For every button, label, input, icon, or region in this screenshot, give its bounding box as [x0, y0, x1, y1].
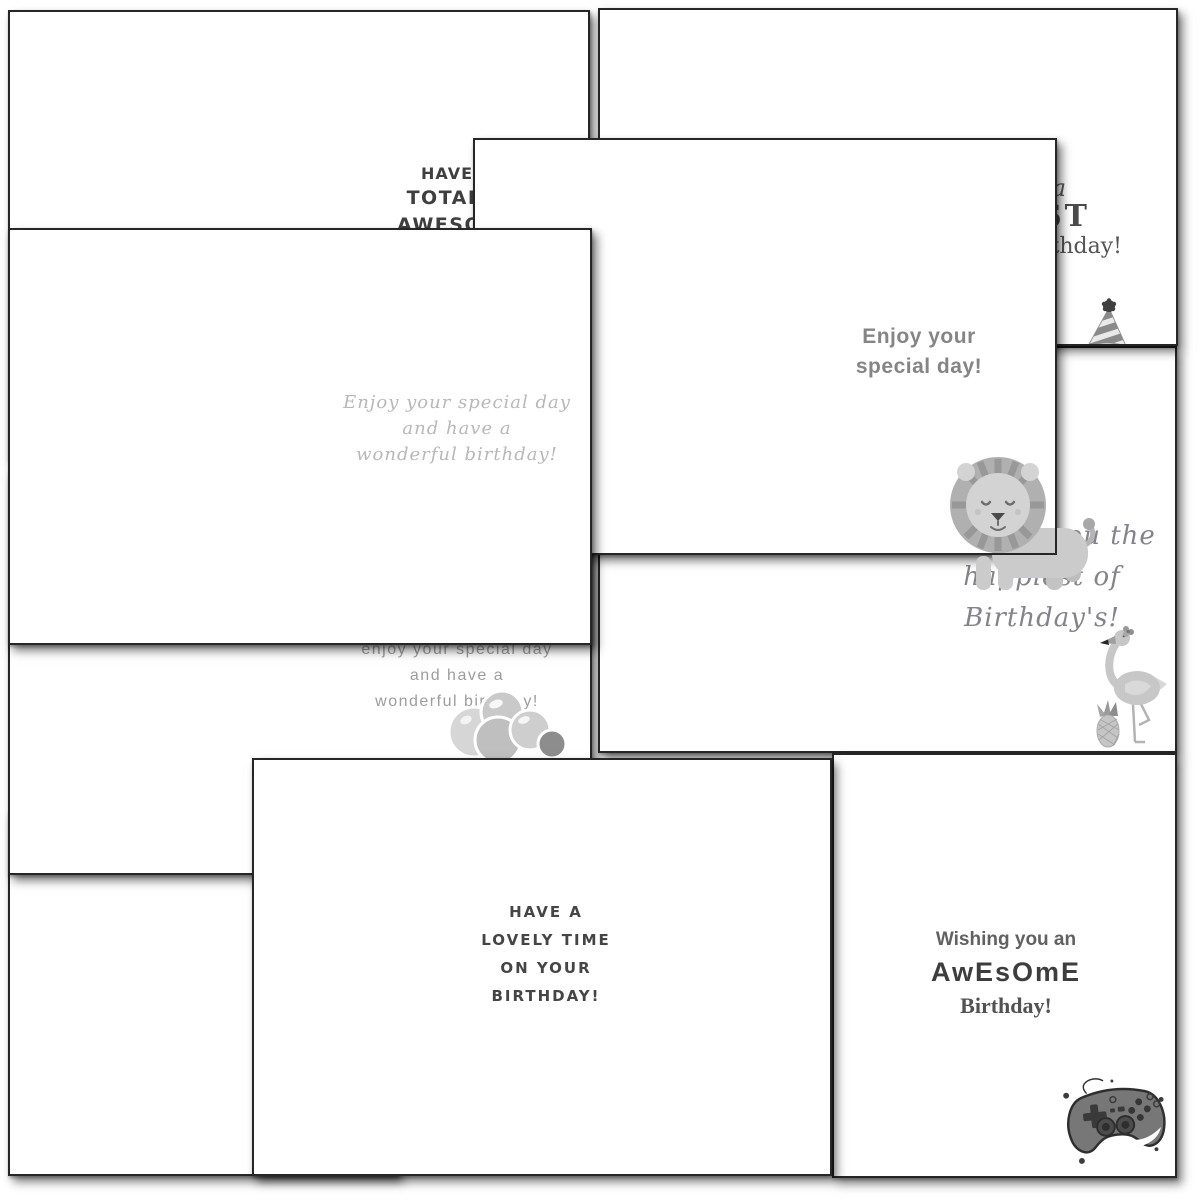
greeting-message: Enjoy your special day!	[856, 322, 982, 382]
message-line: Enjoy your	[856, 322, 982, 352]
lion-icon	[946, 450, 1096, 592]
message-line: special day!	[856, 352, 982, 382]
card-lovely-interior: HAVE A LOVELY TIME ON YOUR BIRTHDAY!	[252, 758, 832, 1176]
message-line: wonderful birthday!	[343, 442, 571, 468]
message-line: Birthday!	[931, 991, 1081, 1021]
greeting-message: Wishing you an AwEsOmE Birthday!	[931, 927, 1081, 1021]
card-script-interior: Enjoy your special day and have a wonder…	[8, 228, 592, 645]
message-line: Wishing you an	[931, 927, 1081, 953]
pineapple-icon	[1097, 700, 1119, 747]
message-line: AwEsOmE	[931, 953, 1081, 991]
card-collage: HAVE A TOTALLY AWESOME enjoy your specia…	[0, 0, 1200, 1200]
flamingo-illustration	[1095, 624, 1167, 750]
message-line: and have a	[343, 416, 571, 442]
party-hat-icon	[1083, 298, 1131, 346]
message-line: Enjoy your special day	[343, 390, 571, 416]
message-line: LOVELY TIME	[481, 926, 611, 954]
message-line: HAVE A	[481, 898, 611, 926]
balloons-icon	[434, 690, 570, 762]
message-line: BIRTHDAY!	[481, 982, 611, 1010]
message-line: and have a	[361, 663, 552, 689]
card-awesome-interior: Wishing you an AwEsOmE Birthday!	[832, 753, 1177, 1178]
greeting-message: Enjoy your special day and have a wonder…	[343, 390, 571, 468]
greeting-message: HAVE A LOVELY TIME ON YOUR BIRTHDAY!	[481, 898, 611, 1010]
message-line: ON YOUR	[481, 954, 611, 982]
game-controller-icon	[1062, 1071, 1170, 1165]
